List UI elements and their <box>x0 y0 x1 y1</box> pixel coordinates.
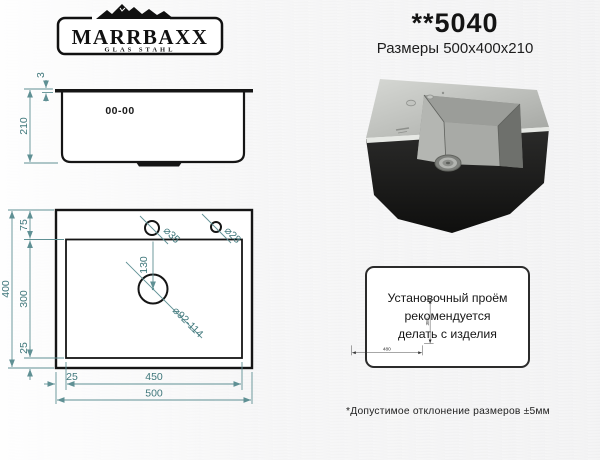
size-caption: Размеры 500x400x210 <box>330 40 580 57</box>
sink-rim <box>55 89 253 93</box>
drain-stub <box>136 162 182 167</box>
sink-bowl-profile <box>62 93 244 163</box>
dim-450-label: 450 <box>145 371 163 383</box>
dim-400-label: 400 <box>0 280 12 298</box>
model-number: **5040 <box>340 8 570 39</box>
top-view-drawing: ⌀35 ⌀28 ⌀92-114 130 400 75 300 25 25 450… <box>0 210 252 404</box>
side-view-drawing: 00-00 3 210 <box>18 72 253 167</box>
dim-500-label: 500 <box>145 388 163 400</box>
tolerance-footnote: *Допустимое отклонение размеров ±5мм <box>346 406 591 417</box>
dim-3-label: 3 <box>35 72 47 78</box>
dim-210-label: 210 <box>18 117 30 135</box>
dim-75-label: 75 <box>18 219 30 231</box>
drain-strainer <box>435 155 461 171</box>
dim-25-left-label: 25 <box>18 342 30 354</box>
dim-130-label: 130 <box>138 256 150 274</box>
dim-300-label: 300 <box>18 290 30 308</box>
marking-label: 00-00 <box>105 105 134 117</box>
dim-480-label: 480 <box>383 347 391 353</box>
cutout-dim-lines <box>352 299 434 355</box>
cutout-dimensions: 380 480 <box>340 250 600 400</box>
technical-drawings: 00-00 3 210 <box>0 0 320 460</box>
dim-380-label: 380 <box>425 317 431 325</box>
sink-photo <box>348 73 563 238</box>
dim-25-bottom-label: 25 <box>66 371 78 383</box>
spec-sheet-page: MARRBAXX GLAS STAHL **5040 Размеры 500x4… <box>0 0 600 460</box>
